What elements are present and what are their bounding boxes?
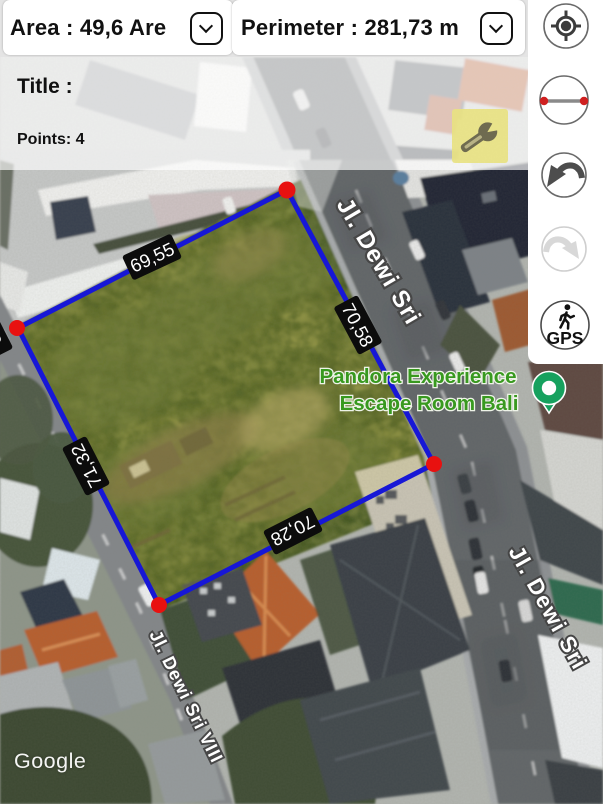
svg-text:GPS: GPS [547, 328, 584, 348]
svg-text:Escape Room Bali: Escape Room Bali [340, 392, 519, 415]
svg-text:Google: Google [14, 749, 86, 773]
svg-text:Pandora Experience: Pandora Experience [319, 365, 516, 388]
